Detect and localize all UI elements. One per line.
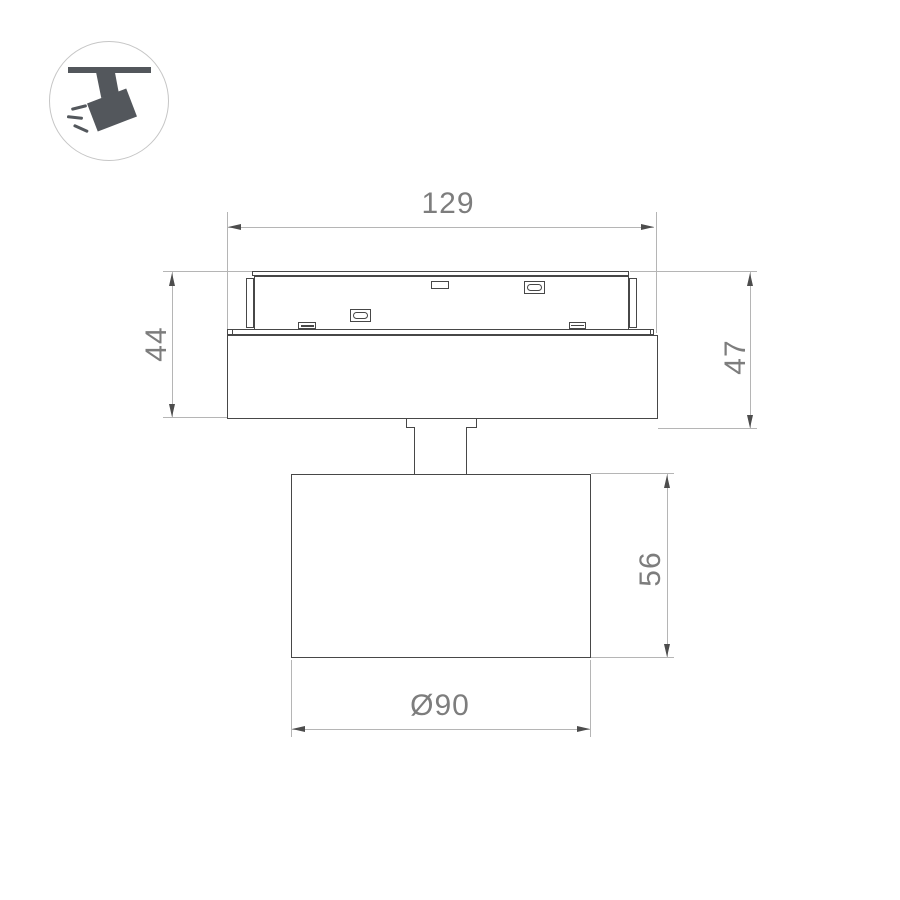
dim-arrow-icon [747,415,753,428]
adapter-contact-pill [350,309,371,322]
adapter-contact-pill [524,281,545,294]
adapter-contact-pill-inner [527,284,542,291]
dim-arrow-icon [169,273,175,286]
dim-label-height-left: 44 [142,314,172,374]
dim-arrow-icon [169,404,175,417]
dim-extension-line [630,271,757,272]
dim-arrow-icon [292,726,305,732]
track-adapter-right-tab [629,278,637,328]
adapter-contact-flat-inner [301,325,314,326]
adapter-contact-flat-inner [571,325,584,326]
adapter-contact-flat [298,322,316,329]
dim-arrow-icon [747,273,753,286]
dim-extension-line [591,473,674,474]
dim-extension-line [591,657,674,658]
track-adapter-left-tab [246,278,254,328]
adapter-contact-pill-inner [353,312,368,319]
dim-line-width [227,227,654,228]
dim-label-height-right: 47 [721,327,751,387]
dim-arrow-icon [641,224,654,230]
pivot-stem [414,427,467,474]
dim-label-head-height: 56 [636,539,666,599]
dim-line-height-right [750,272,751,428]
dim-line-diameter [291,729,590,730]
lamp-head-cylinder [291,474,591,658]
dim-line-head-height [667,474,668,658]
icon-lamp-head [87,88,137,131]
adapter-contact-flat [569,322,587,329]
dim-arrow-icon [664,644,670,657]
technical-drawing-canvas: 129 44 47 56 Ø90 [0,0,900,900]
dim-label-diameter: Ø90 [390,691,490,721]
adapter-contact-plain [431,281,449,289]
dim-arrow-icon [664,475,670,488]
icon-light-ray [71,104,87,110]
dim-arrow-icon [228,224,241,230]
icon-light-ray [67,115,83,119]
icon-light-ray [73,124,89,133]
dim-arrow-icon [577,726,590,732]
dim-line-height-left [172,272,173,419]
dim-label-width: 129 [400,189,496,219]
track-light-icon [49,41,169,161]
fixture-housing [227,335,658,419]
icon-track-bar [68,67,151,73]
dim-extension-line [658,428,757,429]
dim-extension-line [163,271,252,272]
